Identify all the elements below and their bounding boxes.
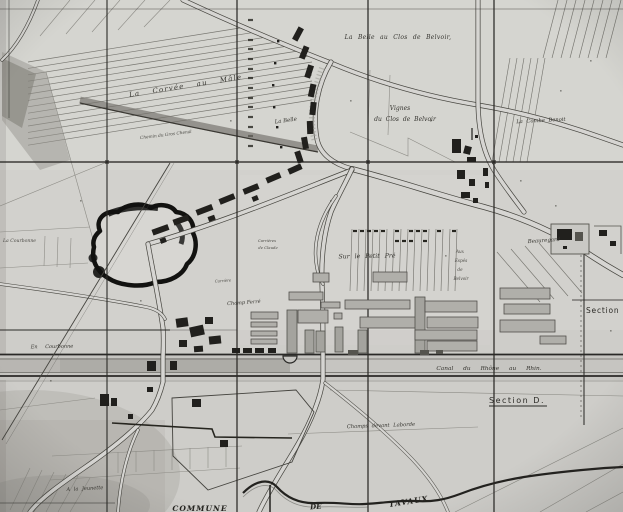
photo-vignette [0,0,623,512]
map-canvas: La Belle au Clos de Belvoir, Vignes du C… [0,0,623,512]
cadastral-map-scan: La Belle au Clos de Belvoir, Vignes du C… [0,0,623,512]
